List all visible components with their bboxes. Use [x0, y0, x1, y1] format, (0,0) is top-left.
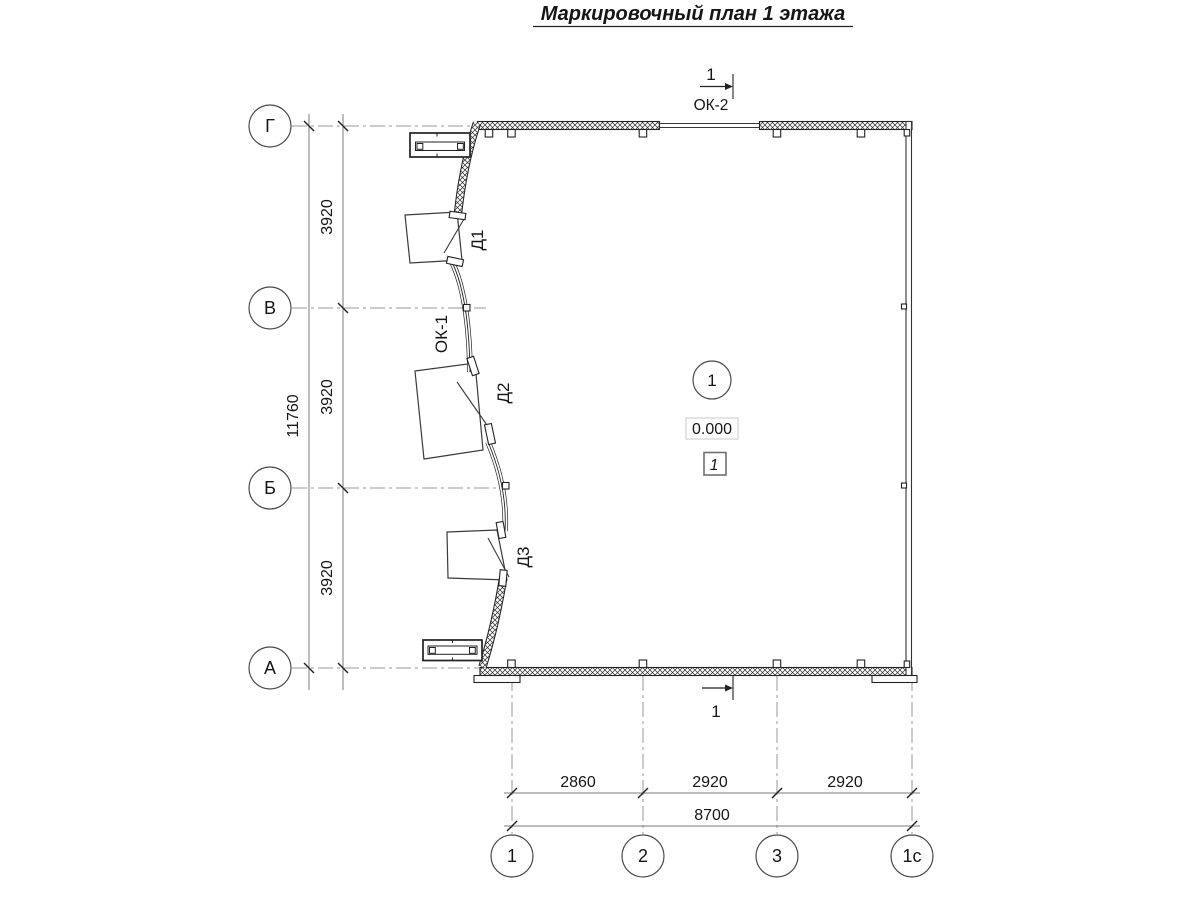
frame-d2-hinge [484, 423, 495, 444]
axis-circles-bottom: 1 2 3 1с [491, 835, 933, 877]
dim-bottom-segment-1: 2860 [560, 774, 596, 791]
frame-d3-bottom [499, 570, 507, 587]
axis-label-row-b: Б [264, 478, 276, 498]
section-number-top: 1 [706, 65, 715, 84]
post-bottom-axis3 [773, 660, 781, 668]
marker-window-mid [503, 483, 510, 490]
window-ok2-label: ОК-2 [694, 97, 729, 114]
post-bottom-axis1 [508, 660, 516, 668]
window-ok2-opening [660, 124, 760, 128]
radiator-top [410, 133, 470, 157]
wall-bottom [480, 668, 912, 676]
post-top-right-corner [904, 130, 910, 137]
wall-top-right-segment [760, 122, 913, 130]
level-value: 0.000 [692, 421, 732, 438]
plan-canvas: Маркировочный план 1 этажа [0, 0, 1200, 900]
footing-right [872, 676, 917, 683]
door-label-d1: Д1 [468, 230, 487, 251]
axis-label-col-1: 1 [507, 846, 517, 866]
axis-grid-lines [292, 126, 912, 834]
floor-plan-drawing: Маркировочный план 1 этажа [0, 0, 1200, 900]
page-title: Маркировочный план 1 этажа [541, 3, 846, 25]
post-top-corner [485, 130, 493, 138]
section-arrowhead-top [725, 83, 733, 90]
dim-left-segment-2: 3920 [319, 379, 336, 415]
axis-label-row-v: В [264, 298, 276, 318]
post-top-axis1 [508, 130, 516, 138]
walls [458, 122, 918, 683]
section-number-bottom: 1 [711, 702, 720, 721]
axis-label-col-1c: 1с [902, 846, 921, 866]
dim-left-segment-3: 3920 [319, 560, 336, 596]
post-bottom-mid [857, 660, 865, 668]
door-label-d2: Д2 [494, 383, 513, 404]
post-bottom-right-corner [904, 661, 910, 668]
door-label-d3: Д3 [514, 547, 533, 568]
section-mark-bottom: 1 [702, 676, 733, 721]
post-bottom-axis2 [639, 660, 647, 668]
post-top-axis2 [639, 130, 647, 138]
dim-left-total: 11760 [285, 394, 302, 437]
door-leaf-d2 [415, 363, 483, 459]
wall-top-left-segment [478, 122, 660, 130]
axis-label-row-a: А [264, 658, 276, 678]
marker-window-ok1 [464, 305, 471, 312]
marker-right-wall-b [902, 483, 907, 488]
axis-label-col-2: 2 [638, 846, 648, 866]
window-ok1-label: ОК-1 [432, 315, 451, 353]
door-leaf-d3 [447, 530, 507, 580]
window-ok1 [452, 262, 470, 372]
marker-right-wall-v [902, 304, 907, 309]
axis-label-col-3: 3 [772, 846, 782, 866]
wall-right [906, 122, 912, 676]
dimension-texts: 3920 3920 3920 11760 2860 2920 2920 8700 [285, 199, 863, 824]
dim-bottom-segment-2: 2920 [692, 774, 728, 791]
floor-type-value: 1 [710, 457, 719, 474]
wall-curved-bottom [483, 579, 504, 667]
drawing-title: Маркировочный план 1 этажа [533, 3, 853, 27]
dimension-lines [304, 114, 920, 831]
room-marks: 1 0.000 1 [686, 361, 738, 475]
axis-label-row-g: Г [265, 116, 275, 136]
footing-left [474, 676, 520, 683]
post-top-mid [857, 130, 865, 138]
dim-left-segment-1: 3920 [319, 199, 336, 235]
section-arrowhead-bottom [725, 685, 733, 692]
radiator-bottom [423, 640, 482, 661]
dim-bottom-total: 8700 [694, 807, 730, 824]
room-number: 1 [707, 371, 716, 390]
section-mark-top: 1 ОК-2 [694, 65, 733, 114]
post-top-axis3 [773, 130, 781, 138]
wall-posts [464, 130, 910, 668]
dim-bottom-segment-3: 2920 [827, 774, 863, 791]
dim-ticks [304, 121, 917, 831]
